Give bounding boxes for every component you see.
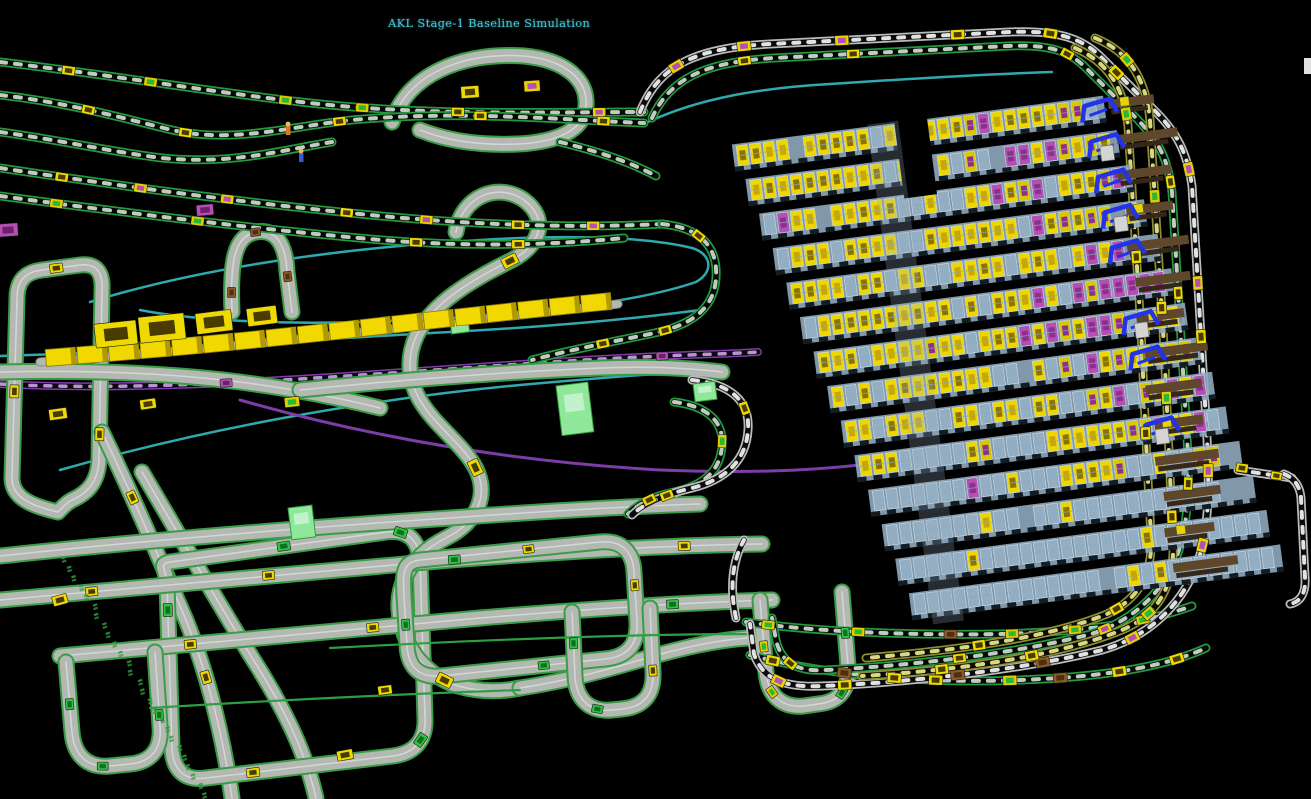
bag-tote xyxy=(228,287,236,297)
bag-tote xyxy=(1005,629,1018,638)
queued-bag xyxy=(360,316,392,336)
tote-contents xyxy=(514,222,521,227)
tote-contents xyxy=(681,544,688,549)
scanner-machine xyxy=(288,505,316,540)
bag-tote xyxy=(1167,510,1178,523)
window-artifact xyxy=(1304,58,1311,74)
bag-tote xyxy=(278,95,292,105)
bag-tote xyxy=(1112,665,1127,677)
crane-carriage xyxy=(1134,322,1149,339)
tote-contents xyxy=(669,602,676,607)
tote-contents xyxy=(1195,279,1201,287)
tote-contents xyxy=(285,273,290,279)
human-figure xyxy=(286,122,291,135)
loose-bag xyxy=(377,685,392,696)
tote-contents xyxy=(12,388,17,395)
tote-contents xyxy=(477,113,484,118)
human-body xyxy=(286,126,291,135)
tote-contents xyxy=(1186,480,1191,487)
tote-contents xyxy=(412,240,420,245)
bag-tote xyxy=(246,767,260,777)
tote-contents xyxy=(762,643,767,649)
queued-bag xyxy=(392,313,424,333)
tote-contents xyxy=(938,666,946,672)
tote-contents xyxy=(954,32,962,38)
bag-tote xyxy=(569,638,578,649)
simulation-window: AKL Stage-1 Baseline Simulation xyxy=(0,0,1311,799)
tote-contents xyxy=(2,226,14,234)
tote-contents xyxy=(280,543,288,549)
bag-tote xyxy=(49,263,63,274)
tote-contents xyxy=(223,381,230,385)
tote-contents xyxy=(890,675,898,681)
tote-contents xyxy=(53,201,61,207)
bag-tote xyxy=(666,600,678,610)
simulation-title: AKL Stage-1 Baseline Simulation xyxy=(388,16,590,30)
tote-contents xyxy=(343,210,351,215)
queued-bag xyxy=(329,320,361,340)
bag-tote xyxy=(759,641,768,653)
tote-contents xyxy=(97,431,102,438)
tote-contents xyxy=(515,242,522,247)
queued-bag xyxy=(297,323,329,343)
human-figure xyxy=(299,149,304,162)
loose-bag xyxy=(138,313,186,344)
tote-contents xyxy=(1159,304,1165,312)
bag-tote xyxy=(837,680,852,691)
bag-tote xyxy=(511,220,524,229)
bag-tote xyxy=(332,116,346,126)
tote-contents xyxy=(843,630,848,636)
tote-contents xyxy=(358,105,366,110)
tote-contents xyxy=(855,629,862,634)
bag-tote xyxy=(1149,189,1160,203)
tote-contents xyxy=(104,327,129,342)
bag-tote xyxy=(1053,672,1068,683)
loose-bag xyxy=(0,223,18,237)
tote-contents xyxy=(65,68,73,74)
bag-tote xyxy=(852,627,865,637)
machine-top xyxy=(294,512,310,525)
bag-tote xyxy=(841,627,850,639)
bag-tote xyxy=(178,127,192,138)
tote-contents xyxy=(849,51,857,56)
loose-bag xyxy=(524,80,541,92)
bag-tote xyxy=(133,183,147,194)
tote-contents xyxy=(194,218,202,223)
loose-bag xyxy=(461,85,480,98)
bag-tote xyxy=(1068,625,1082,635)
tote-contents xyxy=(1006,678,1014,683)
bag-tote xyxy=(591,704,603,714)
bag-tote xyxy=(10,385,19,398)
tote-contents xyxy=(956,655,964,661)
bag-tote xyxy=(761,620,775,630)
bag-tote xyxy=(277,541,291,552)
tote-contents xyxy=(336,119,344,125)
tote-contents xyxy=(540,663,547,668)
bag-tote xyxy=(262,570,275,580)
bag-tote xyxy=(587,221,600,230)
bag-tote xyxy=(1120,107,1132,121)
bag-tote xyxy=(191,216,205,226)
bag-tote xyxy=(593,108,606,117)
loose-bag xyxy=(195,309,233,334)
machine-top xyxy=(564,393,585,413)
tote-contents xyxy=(764,622,772,627)
tote-contents xyxy=(741,58,749,64)
simulation-svg xyxy=(0,0,1311,799)
human-head xyxy=(299,149,304,154)
tote-contents xyxy=(1008,631,1015,636)
bag-tote xyxy=(1270,471,1282,481)
tote-contents xyxy=(52,265,60,271)
crane-carriage xyxy=(1155,428,1170,445)
tote-contents xyxy=(1152,192,1158,200)
bag-tote xyxy=(95,428,104,441)
queued-bag xyxy=(234,330,266,350)
bag-tote xyxy=(523,545,535,554)
bag-tote xyxy=(846,49,859,59)
queued-bag xyxy=(454,306,486,326)
bag-tote xyxy=(1196,329,1207,344)
tote-contents xyxy=(590,223,597,228)
loose-bag xyxy=(196,204,214,216)
bag-tote xyxy=(250,228,261,237)
tote-contents xyxy=(265,573,272,578)
bag-tote xyxy=(837,667,852,679)
bag-tote xyxy=(163,603,172,616)
bag-tote xyxy=(972,639,986,651)
tote-contents xyxy=(841,682,849,688)
tote-contents xyxy=(720,438,725,445)
tote-contents xyxy=(600,119,608,124)
bag-tote xyxy=(143,77,157,88)
arm-tote xyxy=(1119,96,1129,106)
queued-bag xyxy=(266,327,298,347)
tote-contents xyxy=(1143,430,1149,438)
tote-contents xyxy=(157,712,162,718)
tote-contents xyxy=(740,43,748,49)
tote-contents xyxy=(659,354,666,358)
tote-contents xyxy=(595,110,602,115)
tote-contents xyxy=(1176,289,1181,297)
human-body xyxy=(299,153,304,162)
queued-bag xyxy=(203,333,234,353)
tote-contents xyxy=(88,589,95,594)
bag-tote xyxy=(950,29,964,40)
crane-carriage xyxy=(1114,216,1129,233)
bag-tote xyxy=(283,271,292,282)
bag-tote xyxy=(538,661,550,670)
bag-tote xyxy=(630,580,639,591)
bag-tote xyxy=(97,762,108,770)
bag-tote xyxy=(61,65,75,76)
bag-tote xyxy=(1043,27,1058,39)
bag-tote xyxy=(928,675,942,685)
bag-tote xyxy=(220,379,232,388)
bag-tote xyxy=(55,172,69,183)
tote-contents xyxy=(954,672,962,678)
bag-tote xyxy=(717,435,726,448)
tote-contents xyxy=(137,185,145,191)
tote-contents xyxy=(451,557,458,562)
scanner-machine xyxy=(693,381,717,402)
tote-contents xyxy=(525,547,532,552)
tote-contents xyxy=(423,217,431,222)
tote-contents xyxy=(100,764,106,768)
tote-contents xyxy=(465,89,475,96)
loose-bag xyxy=(284,396,300,408)
bag-tote xyxy=(1003,675,1017,685)
queued-bag xyxy=(580,293,612,313)
crane-carriage xyxy=(1100,145,1115,162)
tote-contents xyxy=(1071,627,1079,632)
bag-tote xyxy=(952,653,966,664)
bag-tote xyxy=(1156,301,1167,315)
bag-tote xyxy=(65,698,74,710)
bag-tote xyxy=(474,111,487,120)
tote-contents xyxy=(1164,394,1170,402)
tote-contents xyxy=(651,667,655,673)
scanner-machine xyxy=(556,382,594,436)
tote-contents xyxy=(840,670,848,676)
bag-tote xyxy=(1131,250,1142,264)
tote-contents xyxy=(229,290,233,296)
tote-contents xyxy=(454,109,461,114)
bag-tote xyxy=(401,619,410,630)
bag-tote xyxy=(736,40,751,51)
bag-tote xyxy=(950,669,965,681)
bag-tote xyxy=(512,240,525,249)
human-head xyxy=(286,122,291,127)
tote-contents xyxy=(1198,333,1204,341)
bag-tote xyxy=(656,352,668,360)
tote-contents xyxy=(403,622,408,628)
tote-contents xyxy=(165,606,170,613)
loose-bag xyxy=(246,305,278,327)
bag-tote xyxy=(1024,650,1039,662)
tote-contents xyxy=(200,207,210,214)
tote-contents xyxy=(1134,253,1140,261)
tote-contents xyxy=(369,625,376,630)
queued-bag xyxy=(549,296,581,316)
loose-bag xyxy=(139,398,156,410)
bag-tote xyxy=(737,56,751,67)
bag-tote xyxy=(935,664,949,675)
bag-tote xyxy=(409,237,422,247)
bag-tote xyxy=(420,215,434,225)
bag-tote xyxy=(1161,391,1172,404)
tote-contents xyxy=(67,701,72,707)
tote-contents xyxy=(633,582,638,588)
queued-bag xyxy=(486,302,518,322)
bag-tote xyxy=(835,35,849,46)
bag-tote xyxy=(1203,464,1213,478)
queued-bag xyxy=(517,299,549,319)
bag-tote xyxy=(1184,477,1193,490)
tote-contents xyxy=(282,97,290,103)
bag-tote xyxy=(678,541,690,550)
bag-tote xyxy=(1192,276,1203,291)
tote-contents xyxy=(838,38,846,44)
tote-contents xyxy=(1056,675,1064,681)
bag-tote xyxy=(340,208,354,218)
bag-tote xyxy=(366,622,379,632)
loose-bag xyxy=(94,320,138,348)
tote-contents xyxy=(187,642,194,647)
tote-contents xyxy=(947,632,954,637)
bag-tote xyxy=(355,103,369,113)
tote-contents xyxy=(252,230,258,235)
tote-contents xyxy=(249,770,257,775)
bag-tote xyxy=(597,116,610,126)
tote-contents xyxy=(975,642,983,648)
tote-contents xyxy=(932,677,940,682)
bag-tote xyxy=(1173,286,1183,300)
loose-bag xyxy=(1235,463,1248,474)
queued-bag xyxy=(423,309,455,329)
bag-tote xyxy=(220,194,234,205)
bag-tote xyxy=(887,672,902,683)
tote-contents xyxy=(527,83,536,89)
tote-contents xyxy=(1169,513,1175,521)
queued-bag xyxy=(45,347,76,366)
bag-tote xyxy=(49,198,63,209)
tote-contents xyxy=(1238,465,1245,471)
bag-tote xyxy=(944,630,957,639)
bag-tote xyxy=(1165,175,1176,189)
tote-contents xyxy=(571,640,575,646)
tote-contents xyxy=(148,320,175,336)
tote-contents xyxy=(223,196,231,202)
bag-tote xyxy=(448,555,461,565)
bag-tote xyxy=(451,107,464,116)
bag-tote xyxy=(649,665,658,676)
loose-bag xyxy=(48,407,67,420)
arm-tote xyxy=(1176,525,1186,535)
bag-tote xyxy=(1140,427,1151,440)
tote-contents xyxy=(1206,467,1211,475)
bag-tote xyxy=(184,639,197,649)
tote-contents xyxy=(288,399,297,405)
